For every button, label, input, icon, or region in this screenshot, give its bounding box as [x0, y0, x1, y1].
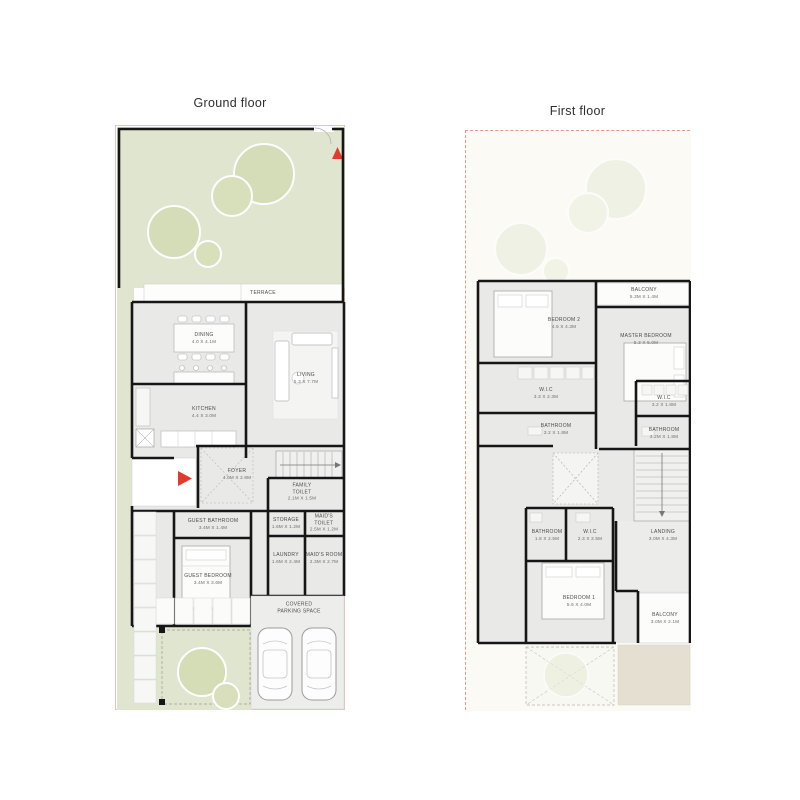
terrace-band: [144, 284, 344, 302]
coffee-table-icon: [292, 372, 304, 384]
bed-icon: [494, 291, 552, 357]
car-icon: [302, 628, 336, 700]
stairs-icon: [634, 449, 690, 521]
car-icon: [258, 628, 292, 700]
tv-console-icon: [332, 348, 338, 398]
stairs-icon: [276, 451, 342, 478]
balcony-bottom: [638, 593, 690, 643]
first-floor-title: First floor: [465, 104, 690, 118]
sofa-icon: [275, 341, 289, 401]
landing-area: [616, 521, 690, 591]
sofa-icon: [292, 333, 332, 345]
ground-floor-drawing: [116, 126, 346, 711]
first-floor-plan: BALCONY 5.3M X 1.4M BEDROOM 2 4.5 X 4.3M…: [465, 130, 690, 710]
ground-floor-plan: TERRACE DINING 4.0 X 4.1M LIVING 5.3 X 7…: [115, 125, 345, 710]
living-furniture: [273, 331, 338, 419]
entry-pad: [132, 458, 196, 506]
bed-icon: [542, 563, 604, 619]
first-floor-drawing: [466, 131, 691, 711]
terrace-pad: [618, 645, 690, 705]
pergola-hatch: [526, 647, 614, 705]
walkway-tiles: [156, 598, 250, 624]
void-hatch-icon: [553, 453, 598, 504]
tree-icon: [544, 653, 588, 697]
tree-icon: [213, 683, 239, 709]
ground-floor-title: Ground floor: [115, 96, 345, 110]
balcony-top: [596, 283, 690, 305]
